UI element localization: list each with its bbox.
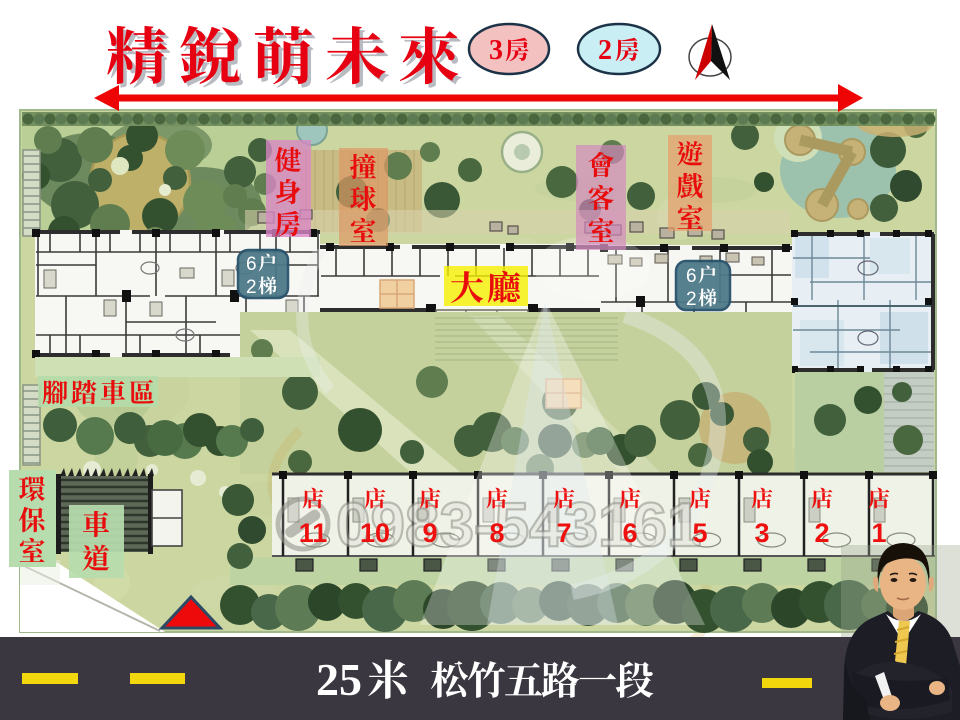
svg-text:6: 6 (246, 254, 257, 275)
svg-text:3: 3 (489, 35, 503, 66)
svg-text:8: 8 (489, 518, 504, 548)
svg-text:2: 2 (686, 289, 697, 310)
svg-text:9: 9 (422, 518, 437, 548)
svg-text:6: 6 (622, 518, 637, 548)
svg-text:0983-543161: 0983-543161 (336, 491, 701, 560)
svg-text:2: 2 (814, 518, 829, 548)
svg-text:5: 5 (692, 518, 707, 548)
svg-text:2: 2 (598, 35, 612, 66)
svg-text:10: 10 (360, 518, 390, 548)
svg-text:7: 7 (556, 518, 571, 548)
svg-text:1: 1 (871, 518, 886, 548)
svg-text:6: 6 (686, 266, 697, 287)
svg-text:2: 2 (246, 277, 257, 298)
svg-text:11: 11 (299, 518, 328, 548)
svg-text:25: 25 (316, 654, 362, 705)
svg-text:3: 3 (754, 518, 769, 548)
